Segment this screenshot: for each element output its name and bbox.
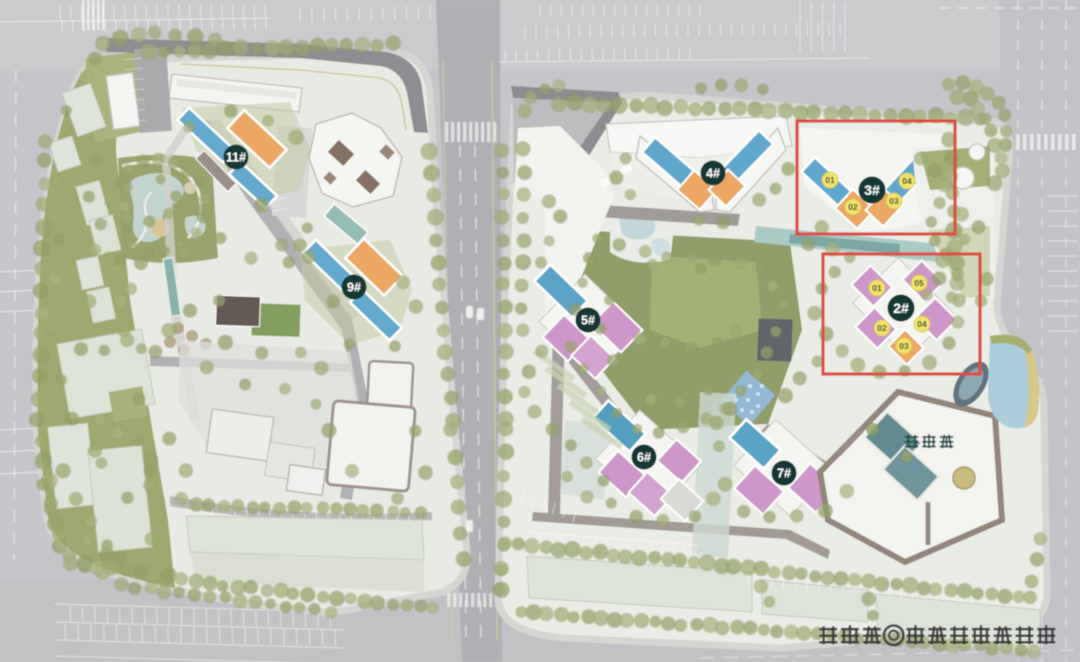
svg-text:7#: 7# — [777, 467, 791, 481]
svg-text:02: 02 — [848, 202, 858, 212]
svg-text:3#: 3# — [864, 182, 880, 198]
svg-text:2#: 2# — [893, 300, 909, 316]
svg-text:9#: 9# — [347, 281, 361, 295]
svg-text:03: 03 — [889, 196, 899, 206]
svg-text:01: 01 — [872, 283, 882, 293]
svg-text:04: 04 — [902, 176, 912, 186]
svg-text:6#: 6# — [637, 451, 651, 465]
svg-text:05: 05 — [914, 278, 924, 288]
svg-text:02: 02 — [877, 323, 887, 333]
svg-text:03: 03 — [899, 341, 909, 351]
svg-text:4#: 4# — [706, 167, 720, 181]
svg-text:01: 01 — [825, 175, 835, 185]
svg-text:11#: 11# — [226, 151, 246, 165]
svg-text:5#: 5# — [581, 314, 595, 328]
svg-text:04: 04 — [917, 319, 927, 329]
